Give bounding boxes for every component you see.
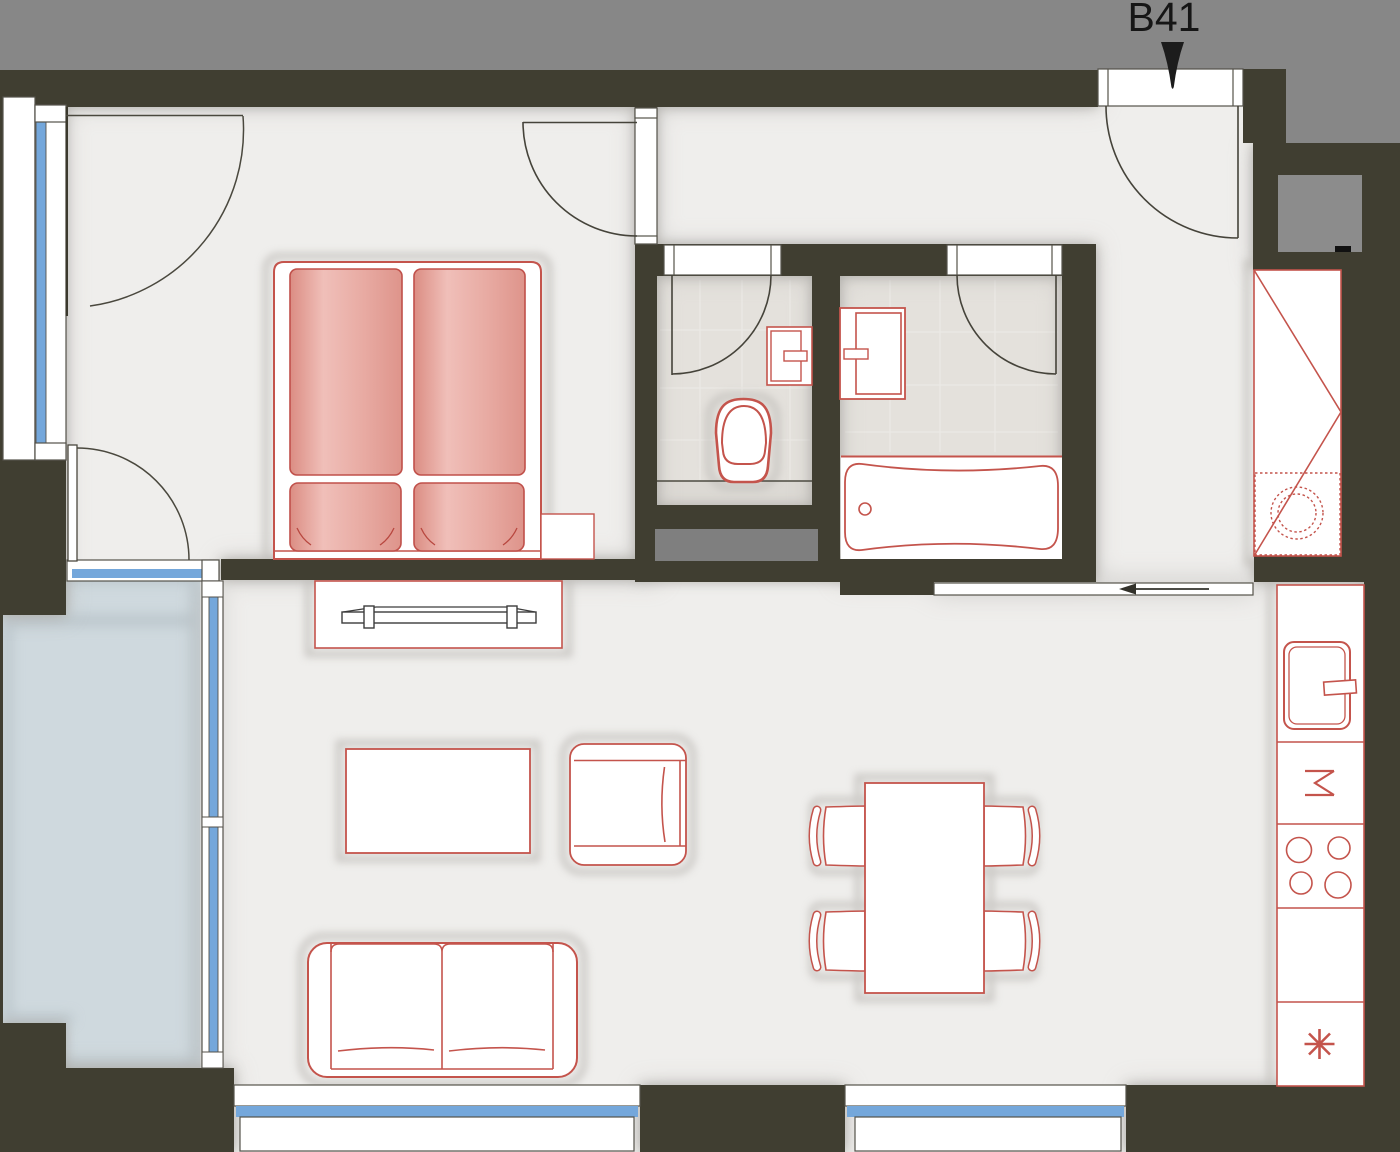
svg-text:B41: B41 — [1128, 0, 1201, 40]
